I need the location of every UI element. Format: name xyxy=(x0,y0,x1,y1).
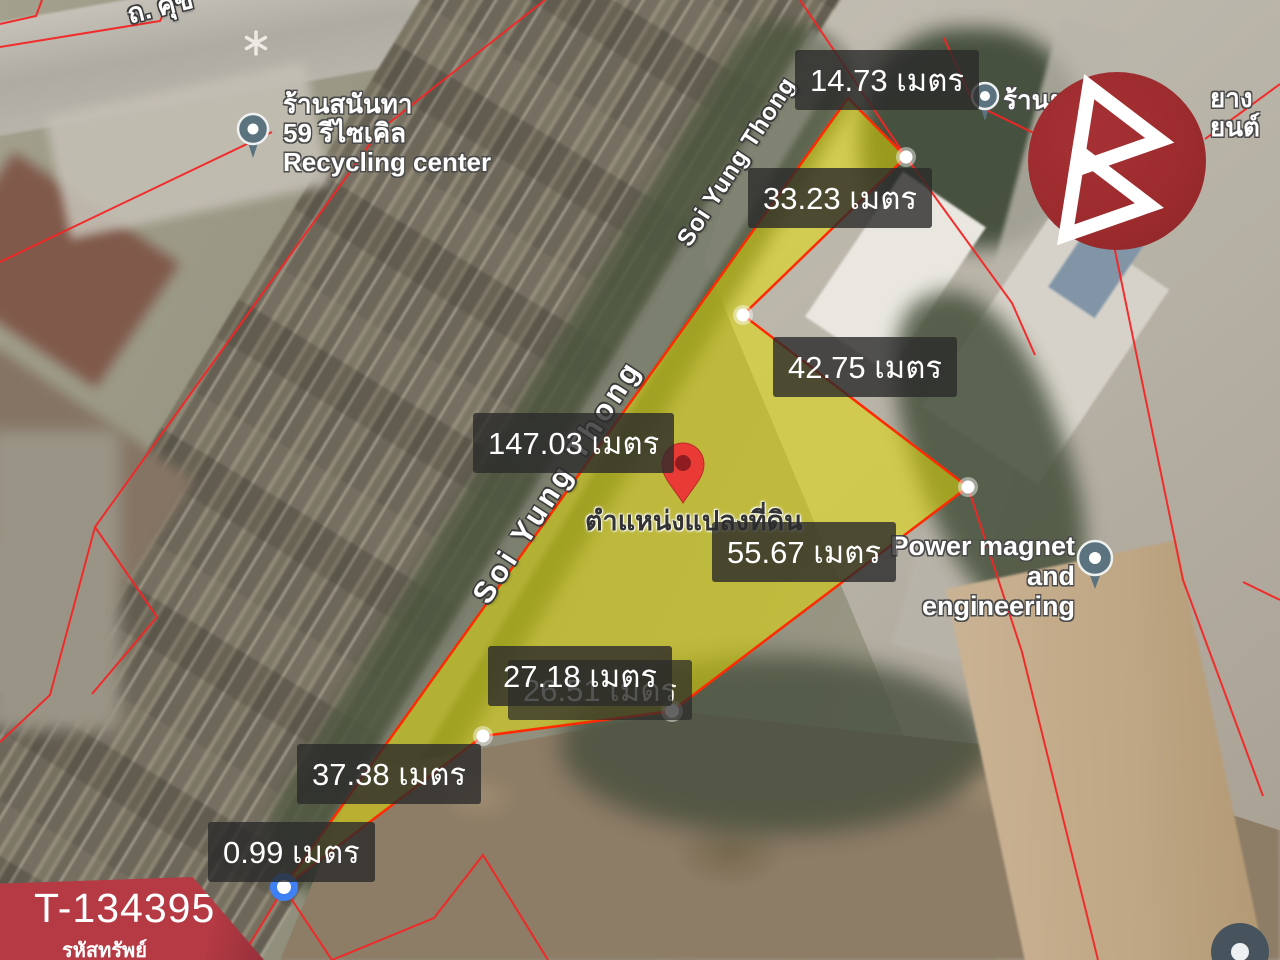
property-code-caption: รหัสทรัพย์ xyxy=(62,934,147,960)
poi-label-tire-right: ยางยนต์ xyxy=(1210,84,1280,142)
road-asterisk-icon xyxy=(247,32,266,54)
poi-engineering-line2: and engineering xyxy=(870,561,1075,621)
measurement-label-right-lower: 55.67 เมตร xyxy=(712,522,896,582)
brand-logo-icon xyxy=(1028,72,1206,250)
poi-recycling-line1: ร้านสนันทา xyxy=(283,90,491,119)
measurement-label-top: 14.73 เมตร xyxy=(795,50,979,110)
measurement-label-bottom-left: 37.38 เมตร xyxy=(297,744,481,804)
satellite-map: ถ. ศุข Soi Yung Thong Soi Yung Thong ong… xyxy=(0,0,1280,960)
measurement-label-left-long: 147.03 เมตร xyxy=(473,413,674,473)
measurement-label-right-upper: 42.75 เมตร xyxy=(773,337,957,397)
measurement-label-upper: 33.23 เมตร xyxy=(748,168,932,228)
property-code: T-134395 xyxy=(34,885,215,932)
poi-engineering-line1: Power magnet xyxy=(870,531,1075,561)
poi-pin-recycling-icon xyxy=(238,114,268,158)
measurement-label-bottom-front: 27.18 เมตร xyxy=(488,646,672,706)
brand-logo xyxy=(1028,72,1206,250)
poi-label-recycling: ร้านสนันทา 59 รีไซเคิล Recycling center xyxy=(283,90,491,177)
poi-recycling-line2: 59 รีไซเคิล xyxy=(283,119,491,148)
poi-label-engineering: Power magnet and engineering xyxy=(870,531,1075,622)
poi-recycling-line3: Recycling center xyxy=(283,148,491,177)
poi-pin-engineering-icon xyxy=(1078,541,1112,589)
measurement-label-tail: 0.99 เมตร xyxy=(208,822,375,882)
poi-pin-bottomright-icon xyxy=(1211,923,1269,960)
